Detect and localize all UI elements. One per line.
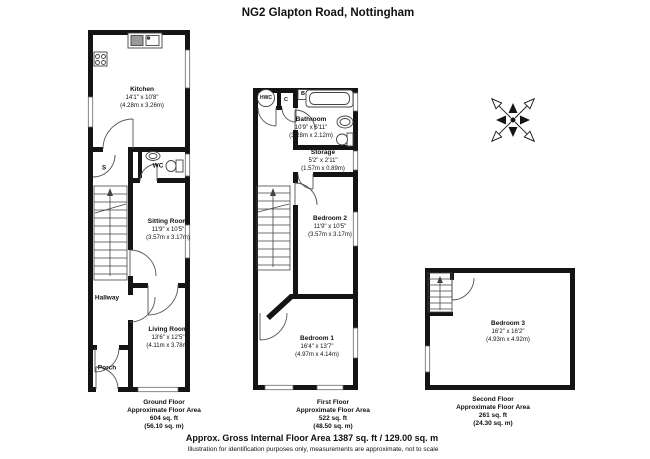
room-metric: (3.57m x 3.17m) xyxy=(146,234,190,242)
bathroom-toilet-icon xyxy=(337,133,354,146)
floor-area-sqm: (56.10 sq. m) xyxy=(127,423,201,431)
room-dims: 5'2" x 2'11" xyxy=(308,157,337,165)
floor-area-sqft: 604 sq. ft xyxy=(127,415,201,423)
porch-label: Porch xyxy=(98,365,116,372)
floor-area-sqm: (24.30 sq. m) xyxy=(456,420,530,428)
room-dims: 13'6" x 12'5" xyxy=(152,334,185,342)
wc-sink-icon xyxy=(146,152,160,161)
wc-label: WC xyxy=(153,163,164,170)
room-label-bedroom-3: Bedroom 3 16'2" x 16'2" (4.93m x 4.92m) xyxy=(486,320,530,344)
room-metric: (3.28m x 2.12m) xyxy=(289,132,333,140)
room-name: Bathroom xyxy=(296,116,327,124)
door-arc xyxy=(103,119,133,149)
boiler-b-label: B xyxy=(301,91,305,97)
floor-area-label: Approximate Floor Area xyxy=(296,407,370,415)
second-door-arcs xyxy=(452,278,474,300)
hob-icon xyxy=(94,52,107,66)
room-name: Storage xyxy=(311,149,335,157)
gross-area-summary: Approx. Gross Internal Floor Area 1387 s… xyxy=(186,433,438,443)
door-arc xyxy=(130,250,156,276)
door-arc xyxy=(148,285,178,315)
room-name: Bedroom 3 xyxy=(491,320,525,328)
disclaimer-text: Illustration for identification purposes… xyxy=(188,446,439,453)
room-dims: 16'4" x 13'7" xyxy=(301,343,334,351)
door-arc xyxy=(452,278,474,300)
bathroom-sink-icon xyxy=(337,116,353,128)
room-name: Kitchen xyxy=(130,86,154,94)
floor-name: First Floor xyxy=(296,399,370,407)
kitchen-sink-icon xyxy=(128,33,162,48)
floor-area-label: Approximate Floor Area xyxy=(456,404,530,412)
floor-area-sqm: (48.50 sq. m) xyxy=(296,423,370,431)
room-dims: 14'1" x 10'8" xyxy=(126,94,159,102)
floor-area-label: Approximate Floor Area xyxy=(127,407,201,415)
second-windows xyxy=(425,346,431,372)
store-s-label: S xyxy=(102,165,106,172)
floorplan-page: NG2 Glapton Road, Nottingham xyxy=(0,0,650,459)
room-metric: (4.93m x 4.92m) xyxy=(486,336,530,344)
floor-name: Second Floor xyxy=(456,396,530,404)
room-dims: 11'9" x 10'5" xyxy=(152,226,184,234)
room-name: Living Room xyxy=(148,326,187,334)
room-label-bathroom: Bathroom 10'9" x 6'11" (3.28m x 2.12m) xyxy=(289,116,333,140)
door-arc xyxy=(258,108,276,126)
room-metric: (4.11m x 3.78m) xyxy=(146,342,189,350)
room-label-storage: Storage 5'2" x 2'11" (1.57m x 0.89m) xyxy=(301,149,345,173)
door-arc xyxy=(298,174,313,189)
floor-name: Ground Floor xyxy=(127,399,201,407)
room-dims: 11'9" x 10'5" xyxy=(314,223,346,231)
room-label-living-room: Living Room 13'6" x 12'5" (4.11m x 3.78m… xyxy=(146,326,189,350)
room-name: Sitting Room xyxy=(148,218,188,226)
first-floor-footer: First Floor Approximate Floor Area 522 s… xyxy=(296,399,370,431)
room-metric: (4.97m x 4.14m) xyxy=(295,351,339,359)
room-metric: (4.28m x 3.26m) xyxy=(120,102,164,110)
door-arc xyxy=(130,297,155,322)
door-arc xyxy=(260,313,287,340)
compass-rose-icon xyxy=(489,96,537,144)
room-dims: 10'9" x 6'11" xyxy=(295,124,327,132)
door-arc xyxy=(295,183,317,205)
wc-toilet-icon xyxy=(166,160,183,172)
hwc-label: HWC xyxy=(260,95,272,101)
ground-stairs-icon xyxy=(94,186,127,280)
floor-area-sqft: 522 sq. ft xyxy=(296,415,370,423)
room-dims: 16'2" x 16'2" xyxy=(492,328,525,336)
bathtub-icon xyxy=(306,90,353,107)
first-stairs-icon xyxy=(257,186,290,270)
room-label-kitchen: Kitchen 14'1" x 10'8" (4.28m x 3.26m) xyxy=(120,86,164,110)
hallway-label: Hallway xyxy=(95,295,119,302)
room-label-bedroom-2: Bedroom 2 11'9" x 10'5" (3.57m x 3.17m) xyxy=(308,215,352,239)
second-floor-footer: Second Floor Approximate Floor Area 261 … xyxy=(456,396,530,428)
room-name: Bedroom 2 xyxy=(313,215,347,223)
floor-area-sqft: 261 sq. ft xyxy=(456,412,530,420)
second-stairs-icon xyxy=(428,273,452,312)
cupboard-c-label: C xyxy=(284,97,288,103)
room-name: Bedroom 1 xyxy=(300,335,334,343)
room-metric: (1.57m x 0.89m) xyxy=(301,165,345,173)
room-label-bedroom-1: Bedroom 1 16'4" x 13'7" (4.97m x 4.14m) xyxy=(295,335,339,359)
room-metric: (3.57m x 3.17m) xyxy=(308,231,352,239)
ground-floor-footer: Ground Floor Approximate Floor Area 604 … xyxy=(127,399,201,431)
diagonal-wall xyxy=(268,296,292,318)
room-label-sitting-room: Sitting Room 11'9" x 10'5" (3.57m x 3.17… xyxy=(146,218,190,242)
